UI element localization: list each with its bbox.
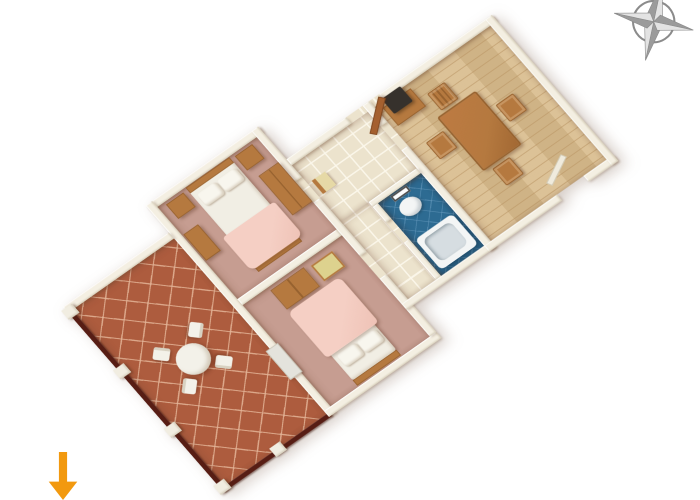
terrace-chair	[188, 322, 204, 339]
terrace-chair	[181, 378, 197, 395]
compass-rose-icon	[602, 0, 700, 76]
terrace-chair	[215, 355, 233, 370]
terrace-chair	[152, 347, 170, 362]
apartment-plan	[40, 0, 667, 500]
floor-plan-render	[0, 0, 700, 500]
down-arrow-icon	[47, 452, 79, 500]
